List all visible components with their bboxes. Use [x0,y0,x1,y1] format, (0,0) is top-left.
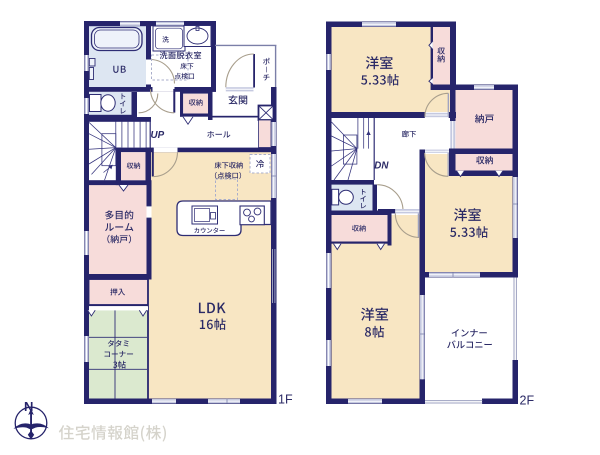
svg-text:UP: UP [151,130,165,141]
svg-text:DN: DN [374,160,389,171]
svg-text:1F: 1F [278,393,293,407]
svg-text:2F: 2F [520,394,535,408]
